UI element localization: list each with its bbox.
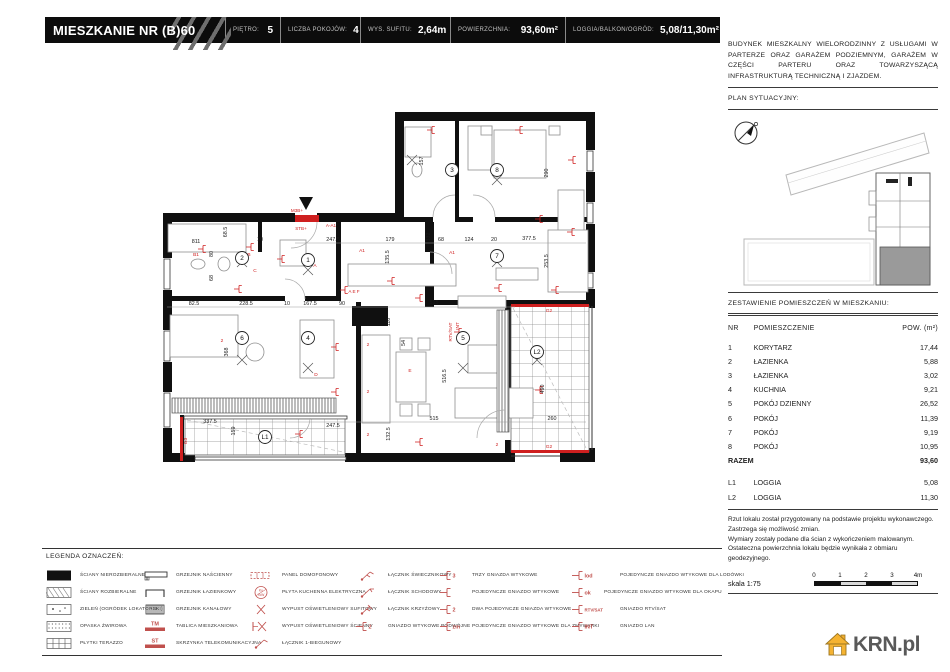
divider xyxy=(728,509,938,510)
divider xyxy=(728,593,938,594)
svg-text:490: 490 xyxy=(540,385,546,394)
legend-item: lodPOJEDYNCZE GNIAZDO WTYKOWE DLA LODÓWK… xyxy=(570,567,744,584)
svg-text:10: 10 xyxy=(257,237,263,243)
svg-text:B1: B1 xyxy=(193,252,199,258)
svg-text:A E F: A E F xyxy=(348,289,359,294)
floorplan-sheet: { "header": { "title": "MIESZKANIE NR (B… xyxy=(0,0,950,672)
legend-column-2: GRZEJNIK NAŚCIENNYGRZEJNIK ŁAZIENKOWYGRZ… xyxy=(142,567,261,652)
switch-cross-icon xyxy=(354,602,384,617)
svg-text:D: D xyxy=(314,372,318,378)
radiator-wall-icon xyxy=(142,568,172,583)
switch-chandelier-icon xyxy=(354,568,384,583)
svg-text:253.5: 253.5 xyxy=(544,254,550,268)
legend-column-6: lodPOJEDYNCZE GNIAZDO WTYKOWE DLA LODÓWK… xyxy=(570,567,744,635)
tm-icon: TM xyxy=(142,619,172,634)
disclaimer-line: Ostateczna powierzchnia lokalu będzie wy… xyxy=(728,544,938,564)
table-row: L1LOGGIA5,08 xyxy=(728,476,938,490)
svg-text:159: 159 xyxy=(231,427,237,436)
legend-item-label: TABLICA MIESZKANIOWA xyxy=(176,624,238,629)
sidebar: BUDYNEK MIESZKALNY WIELORODZINNY Z USŁUG… xyxy=(728,40,938,599)
intercom-icon xyxy=(248,568,278,583)
svg-text:337.5: 337.5 xyxy=(203,419,217,425)
svg-text:332: 332 xyxy=(426,233,432,242)
svg-text:20: 20 xyxy=(491,237,497,243)
table-row xyxy=(728,468,938,476)
legend-item-label: GRZEJNIK ŁAZIENKOWY xyxy=(176,590,236,595)
legend-item-label: POJEDYNCZE GNIAZDO WTYKOWE xyxy=(472,590,559,595)
disclaimer-line: Rzut lokalu został przygotowany na podst… xyxy=(728,515,938,525)
socket-icon xyxy=(438,585,468,600)
legend-item-label: POJEDYNCZE GNIAZDO WTYKOWE DLA LODÓWKI xyxy=(620,573,744,578)
table-row: RAZEM93,60 xyxy=(728,454,938,468)
legend-item: okPOJEDYNCZE GNIAZDO WTYKOWE DLA OKAPU xyxy=(570,584,744,601)
rooms-table: NR POMIESZCZENIE POW. (m²) 1KORYTARZ17,4… xyxy=(728,322,938,504)
svg-text:2: 2 xyxy=(453,608,456,614)
svg-text:2: 2 xyxy=(367,389,370,395)
house-icon xyxy=(824,631,851,658)
room-marker-5: 5 xyxy=(457,332,470,345)
svg-text:M3B+: M3B+ xyxy=(291,208,303,213)
table-row: 3ŁAZIENKA3,02 xyxy=(728,369,938,383)
svg-text:2: 2 xyxy=(221,338,224,344)
svg-text:1: 1 xyxy=(306,257,310,264)
svg-text:8: 8 xyxy=(495,167,499,174)
svg-text:10: 10 xyxy=(284,301,290,307)
scale-tick: 3 xyxy=(890,572,893,579)
col-header-room: POMIESZCZENIE xyxy=(754,322,892,340)
scale-row: skala 1:75 01234m xyxy=(728,572,938,588)
double-divider xyxy=(728,313,938,316)
switch-1-icon xyxy=(248,636,278,651)
table-row: 2ŁAZIENKA5,88 xyxy=(728,354,938,368)
legend-item-label: PŁYTKI TERAZZO xyxy=(80,641,123,646)
scale-tick: 0 xyxy=(812,572,815,579)
svg-text:E: E xyxy=(408,368,411,374)
socket-icon: ok xyxy=(570,585,600,600)
socket-icon: INT xyxy=(570,619,616,634)
legend-item-label: GRZEJNIK NAŚCIENNY xyxy=(176,573,233,578)
svg-text:5: 5 xyxy=(461,335,465,342)
legend-title: LEGENDA OZNACZEŃ: xyxy=(42,549,722,562)
table-row: 6POKÓJ11,39 xyxy=(728,411,938,425)
legend-item: GRZEJNIK KANAŁOWY xyxy=(142,601,261,618)
highlighted-apartment-area xyxy=(880,247,930,285)
svg-text:RTV/SAT: RTV/SAT xyxy=(585,608,604,613)
disclaimer-line: Zastrzega się możliwość zmian. xyxy=(728,525,938,535)
furniture-layer xyxy=(168,126,589,455)
building-description: BUDYNEK MIESZKALNY WIELORODZINNY Z USŁUG… xyxy=(728,40,938,82)
svg-text:A1: A1 xyxy=(359,248,365,254)
logo-text: KRN.pl xyxy=(853,633,920,657)
switch-stair-icon xyxy=(354,585,384,600)
scale-bar-segments xyxy=(814,581,918,586)
socket-icon: 2 xyxy=(438,602,468,617)
room-marker-L1: L1 xyxy=(259,431,272,444)
scale-tick: 1 xyxy=(838,572,841,579)
site-buildings xyxy=(744,133,930,285)
room-marker-3: 3 xyxy=(446,164,459,177)
svg-text:TM: TM xyxy=(151,622,159,628)
disclaimer-line: Wymiary zostały podane dla ścian z wykoń… xyxy=(728,535,938,545)
st-icon: ST xyxy=(142,636,172,651)
room-marker-L2: L2 xyxy=(531,346,544,359)
svg-text:2: 2 xyxy=(369,625,372,631)
scale-tick: 2 xyxy=(864,572,867,579)
legend-item: ŁĄCZNIK 1-BIEGUNOWY xyxy=(248,635,377,652)
svg-text:811: 811 xyxy=(192,239,201,245)
svg-text:135.5: 135.5 xyxy=(385,250,391,264)
divider xyxy=(728,292,938,293)
svg-text:A: A xyxy=(313,263,317,269)
svg-text:INT: INT xyxy=(585,625,594,631)
legend-item-label: GRZEJNIK KANAŁOWY xyxy=(176,607,232,612)
legend-item-label: PANEL DOMOFONOWY xyxy=(282,573,338,578)
svg-text:G2: G2 xyxy=(546,308,553,314)
radiator-bath-icon xyxy=(142,585,172,600)
svg-text:6: 6 xyxy=(240,335,244,342)
site-plan-label: PLAN SYTUACYJNY: xyxy=(728,93,938,104)
svg-text:G3: G3 xyxy=(183,437,189,444)
socket-icon: 2 xyxy=(354,619,384,634)
svg-text:zm: zm xyxy=(453,625,461,631)
room-marker-1: 1 xyxy=(302,254,315,267)
room-marker-4: 4 xyxy=(302,332,315,345)
rooms-table-title: ZESTAWIENIE POMIESZCZEŃ W MIESZKANIU: xyxy=(728,298,938,309)
svg-text:377.5: 377.5 xyxy=(522,236,536,242)
svg-text:68: 68 xyxy=(438,237,444,243)
scale-bar: 01234m xyxy=(814,572,924,588)
svg-text:2: 2 xyxy=(367,432,370,438)
svg-text:Ku: Ku xyxy=(259,589,263,593)
legend-item-label: POJEDYNCZE GNIAZDO WTYKOWE DLA OKAPU xyxy=(604,590,722,595)
svg-text:54: 54 xyxy=(401,340,407,346)
divider xyxy=(728,87,938,88)
table-row: 7POKÓJ9,19 xyxy=(728,425,938,439)
svg-text:260: 260 xyxy=(548,416,557,422)
terrazzo-icon xyxy=(46,636,76,651)
room-marker-2: 2 xyxy=(236,252,249,265)
svg-text:228.5: 228.5 xyxy=(239,301,253,307)
greenery-icon xyxy=(46,602,76,617)
svg-text:C: C xyxy=(253,268,257,274)
svg-text:157: 157 xyxy=(419,157,425,166)
light-ceiling-icon xyxy=(248,602,278,617)
legend-item: GRZEJNIK ŁAZIENKOWY xyxy=(142,584,261,601)
socket-icon: 3 xyxy=(438,568,468,583)
legend-item: RTV/SATGNIAZDO RTV/SAT xyxy=(570,601,744,618)
svg-text:68.5: 68.5 xyxy=(223,227,229,238)
svg-text:80: 80 xyxy=(209,251,215,257)
svg-text:68: 68 xyxy=(209,275,215,281)
svg-text:2: 2 xyxy=(367,342,370,348)
light-wall-icon xyxy=(248,619,278,634)
table-row: 8POKÓJ10,95 xyxy=(728,439,938,453)
table-row: 1KORYTARZ17,44 xyxy=(728,340,938,354)
svg-text:RTV/SAT: RTV/SAT xyxy=(448,322,453,341)
svg-text:7kW: 7kW xyxy=(258,593,266,597)
radiator-duct-icon xyxy=(142,602,172,617)
svg-text:247.5: 247.5 xyxy=(326,423,340,429)
socket-icon: lod xyxy=(570,568,616,583)
table-row: 4KUCHNIA9,21 xyxy=(728,383,938,397)
legend-item: TMTABLICA MIESZKANIOWA xyxy=(142,618,261,635)
svg-text:G2: G2 xyxy=(546,444,553,450)
wall-solid-icon xyxy=(46,568,76,583)
svg-text:118: 118 xyxy=(386,318,392,327)
socket-icon: RTV/SAT xyxy=(570,602,616,617)
table-row: L2LOGGIA11,30 xyxy=(728,490,938,504)
divider xyxy=(728,109,938,110)
svg-text:4: 4 xyxy=(306,335,310,342)
svg-text:STB+: STB+ xyxy=(295,226,307,231)
compass-icon xyxy=(735,122,758,144)
svg-text:515: 515 xyxy=(430,416,439,422)
svg-text:290: 290 xyxy=(544,169,550,178)
legend-item-label: ŁĄCZNIK SCHODOWY xyxy=(388,590,442,595)
room-marker-8: 8 xyxy=(491,164,504,177)
svg-text:124: 124 xyxy=(465,237,474,243)
svg-text:A1: A1 xyxy=(449,250,455,256)
room-marker-6: 6 xyxy=(236,332,249,345)
col-header-area: POW. (m²) xyxy=(892,322,938,340)
svg-text:2: 2 xyxy=(240,255,244,262)
legend-item-label: TRZY GNIAZDA WTYKOWE xyxy=(472,573,537,578)
svg-text:368: 368 xyxy=(224,348,230,357)
table-row: 5POKÓJ DZIENNY26,52 xyxy=(728,397,938,411)
svg-text:82.5: 82.5 xyxy=(189,301,200,307)
svg-text:A-A1: A-A1 xyxy=(326,223,337,228)
legend-item-label: GNIAZDO RTV/SAT xyxy=(620,607,666,612)
legend: LEGENDA OZNACZEŃ: ŚCIANY NIEROZBIERALNEŚ… xyxy=(42,548,722,656)
legend-item-label: OPASKA ŻWIROWA xyxy=(80,624,127,629)
legend-item-label: ŁĄCZNIK 1-BIEGUNOWY xyxy=(282,641,342,646)
col-header-nr: NR xyxy=(728,322,754,340)
svg-text:3: 3 xyxy=(450,167,454,174)
krn-logo: KRN.pl xyxy=(824,631,920,658)
svg-text:ST: ST xyxy=(151,639,159,645)
svg-text:INT: INT xyxy=(455,322,461,330)
svg-text:90: 90 xyxy=(339,301,345,307)
scale-ticks: 01234m xyxy=(814,572,918,580)
svg-text:132.5: 132.5 xyxy=(386,427,392,441)
legend-item-label: DWA POJEDYNCZE GNIAZDA WTYKOWE xyxy=(472,607,571,612)
svg-text:ok: ok xyxy=(585,591,591,597)
wall-hatched-icon xyxy=(46,585,76,600)
legend-item: INTGNIAZDO LAN xyxy=(570,618,744,635)
legend-item: STSKRZYNKA TELEKOMUNIKACYJNA xyxy=(142,635,261,652)
legend-item-label: ŚCIANY ROZBIERALNE xyxy=(80,590,137,595)
room-marker-7: 7 xyxy=(491,250,504,263)
disclaimer-text: Rzut lokalu został przygotowany na podst… xyxy=(728,515,938,564)
svg-text:lod: lod xyxy=(585,574,593,580)
svg-text:247.5: 247.5 xyxy=(326,237,340,243)
svg-text:L1: L1 xyxy=(261,434,269,441)
legend-item: GRZEJNIK NAŚCIENNY xyxy=(142,567,261,584)
socket-icon: zm xyxy=(438,619,468,634)
site-plan-map xyxy=(728,115,936,287)
legend-item-label: ŁĄCZNIK KRZYŻOWY xyxy=(388,607,440,612)
svg-text:515: 515 xyxy=(430,300,439,306)
cooktop-icon: Ku7kW xyxy=(248,585,278,600)
svg-text:179: 179 xyxy=(386,237,395,243)
svg-text:3: 3 xyxy=(453,574,456,580)
svg-text:516.5: 516.5 xyxy=(442,369,448,383)
gravel-icon xyxy=(46,619,76,634)
legend-item-label: GNIAZDO LAN xyxy=(620,624,655,629)
legend-item-label: ŚCIANY NIEROZBIERALNE xyxy=(80,573,145,578)
scale-tick: 4m xyxy=(914,572,923,579)
svg-text:2: 2 xyxy=(496,442,499,448)
svg-text:7: 7 xyxy=(495,253,499,260)
page-title: MIESZKANIE NR (B)60 xyxy=(45,17,185,43)
svg-text:167.5: 167.5 xyxy=(303,301,317,307)
svg-text:L2: L2 xyxy=(533,349,541,356)
